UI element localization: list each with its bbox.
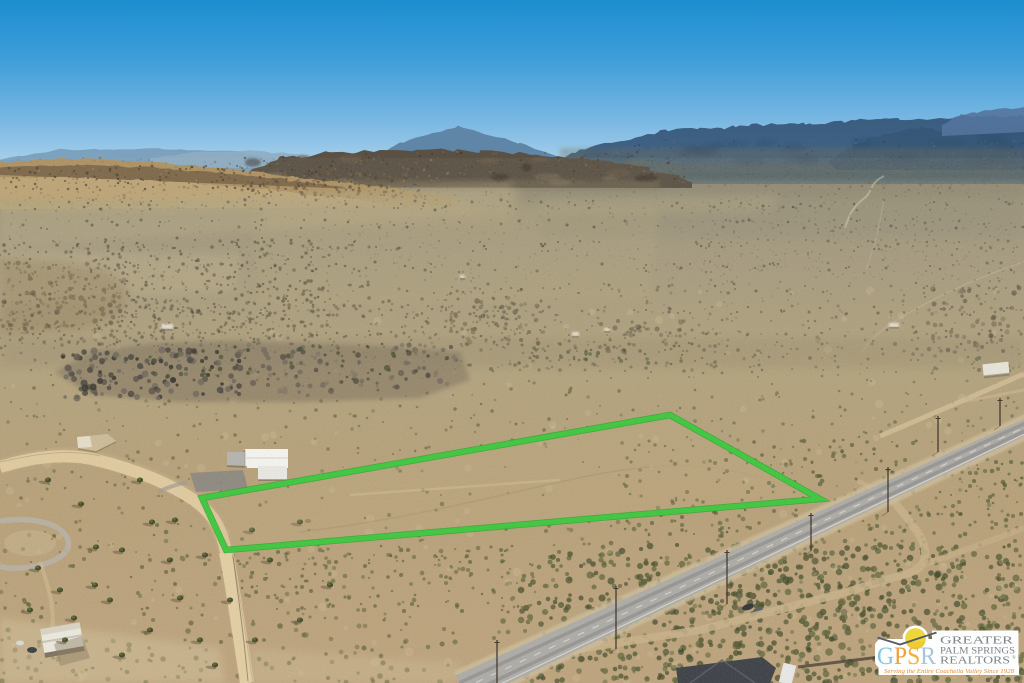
svg-text:GREATER: GREATER [940, 636, 1013, 647]
svg-text:®: ® [1012, 655, 1016, 661]
svg-text:GPSR: GPSR [877, 643, 936, 670]
svg-text:REALTORS: REALTORS [940, 656, 1010, 667]
svg-text:Serving the Entire Coachella V: Serving the Entire Coachella Valley Sinc… [884, 669, 1014, 675]
